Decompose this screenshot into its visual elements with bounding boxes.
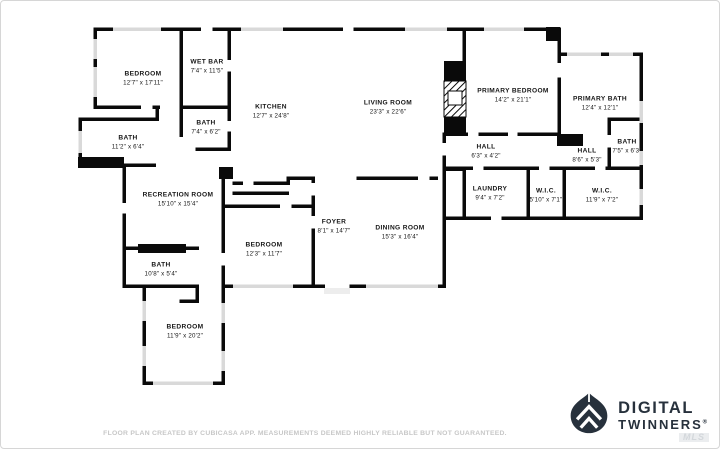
room-label: FOYER8'1" x 14'7" <box>318 219 351 236</box>
room-dimensions: 6'3" x 4'2" <box>471 152 500 160</box>
registered-mark: ® <box>703 420 709 426</box>
room-name: W.I.C. <box>586 188 618 197</box>
room-dimensions: 11'9" x 7'2" <box>586 196 618 204</box>
room-name: BATH <box>612 139 641 148</box>
mls-watermark: MLS <box>679 433 709 442</box>
room-label: HALL8'6" x 5'3" <box>572 148 601 165</box>
room-label: RECREATION ROOM15'10" x 15'4" <box>143 192 214 209</box>
room-label: DINING ROOM15'3" x 16'4" <box>375 225 424 242</box>
room-label: HALL6'3" x 4'2" <box>471 144 500 161</box>
room-name: RECREATION ROOM <box>143 192 214 201</box>
room-name: BEDROOM <box>123 71 163 80</box>
room-dimensions: 7'4" x 11'5" <box>190 67 223 75</box>
room-name: LIVING ROOM <box>364 100 412 109</box>
room-name: PRIMARY BEDROOM <box>477 88 549 97</box>
room-label: BEDROOM12'7" x 17'11" <box>123 71 163 88</box>
room-name: W.I.C. <box>530 188 563 197</box>
logo-word-digital: DIGITAL <box>618 400 709 417</box>
room-dimensions: 15'10" x 15'4" <box>143 200 214 208</box>
room-label: KITCHEN12'7" x 24'8" <box>253 104 290 121</box>
room-dimensions: 5'10" x 7'1" <box>530 196 563 204</box>
room-label: LAUNDRY9'4" x 7'2" <box>473 186 507 203</box>
room-name: HALL <box>572 148 601 157</box>
room-dimensions: 12'7" x 17'11" <box>123 79 163 87</box>
room-label: BEDROOM11'9" x 20'2" <box>167 324 204 341</box>
room-dimensions: 7'4" x 6'2" <box>191 128 220 136</box>
room-dimensions: 23'3" x 22'6" <box>364 108 412 116</box>
room-name: BATH <box>191 120 220 129</box>
room-name: BATH <box>145 262 178 271</box>
room-dimensions: 15'3" x 16'4" <box>375 233 424 241</box>
room-name: HALL <box>471 144 500 153</box>
digital-twinners-logo: DIGITAL TWINNERS® MLS <box>567 391 709 440</box>
room-dimensions: 11'2" x 6'4" <box>112 143 144 151</box>
room-name: BEDROOM <box>246 242 283 251</box>
room-name: BATH <box>112 135 144 144</box>
room-name: KITCHEN <box>253 104 290 113</box>
room-dimensions: 7'5" x 6'3" <box>612 147 641 155</box>
room-label: BATH7'4" x 6'2" <box>191 120 220 137</box>
room-dimensions: 10'8" x 5'4" <box>145 270 178 278</box>
logo-word-twinners: TWINNERS® <box>618 418 709 431</box>
room-label: W.I.C.11'9" x 7'2" <box>586 188 618 205</box>
room-name: PRIMARY BATH <box>573 96 627 105</box>
room-name: FOYER <box>318 219 351 228</box>
floor-plan-page: BEDROOM12'7" x 17'11"WET BAR7'4" x 11'5"… <box>0 0 720 449</box>
room-name: BEDROOM <box>167 324 204 333</box>
room-label: WET BAR7'4" x 11'5" <box>190 59 223 76</box>
room-label: BATH11'2" x 6'4" <box>112 135 144 152</box>
room-name: WET BAR <box>190 59 223 68</box>
room-label: W.I.C.5'10" x 7'1" <box>530 188 563 205</box>
room-dimensions: 12'7" x 24'8" <box>253 112 290 120</box>
room-dimensions: 8'6" x 5'3" <box>572 156 601 164</box>
room-labels: BEDROOM12'7" x 17'11"WET BAR7'4" x 11'5"… <box>1 1 720 449</box>
room-label: PRIMARY BEDROOM14'2" x 21'1" <box>477 88 549 105</box>
room-dimensions: 14'2" x 21'1" <box>477 96 549 104</box>
room-name: DINING ROOM <box>375 225 424 234</box>
room-label: PRIMARY BATH12'4" x 12'1" <box>573 96 627 113</box>
room-label: BEDROOM12'3" x 11'7" <box>246 242 283 259</box>
room-dimensions: 11'9" x 20'2" <box>167 332 204 340</box>
digital-twinners-mark-icon <box>567 391 611 440</box>
disclaimer-text: FLOOR PLAN CREATED BY CUBICASA APP. MEAS… <box>1 430 609 437</box>
room-label: LIVING ROOM23'3" x 22'6" <box>364 100 412 117</box>
room-dimensions: 8'1" x 14'7" <box>318 227 351 235</box>
room-label: BATH10'8" x 5'4" <box>145 262 178 279</box>
room-name: LAUNDRY <box>473 186 507 195</box>
room-label: BATH7'5" x 6'3" <box>612 139 641 156</box>
room-dimensions: 12'4" x 12'1" <box>573 104 627 112</box>
room-dimensions: 9'4" x 7'2" <box>473 194 507 202</box>
room-dimensions: 12'3" x 11'7" <box>246 250 283 258</box>
